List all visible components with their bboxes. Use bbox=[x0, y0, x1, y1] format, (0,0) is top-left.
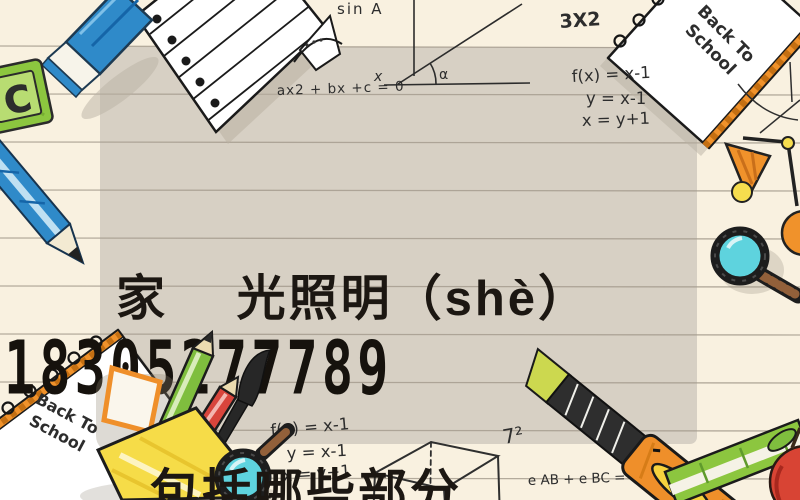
headline: 家 光照明（shè） 包括哪些部分 bbox=[116, 154, 590, 500]
headline-line-2: 包括哪些部分 bbox=[116, 464, 590, 500]
headline-line-1: 家 光照明（shè） bbox=[116, 270, 590, 328]
back-to-school-poster: C sin A x α ax2 + bx +c = 0 3X2 bbox=[0, 0, 800, 500]
